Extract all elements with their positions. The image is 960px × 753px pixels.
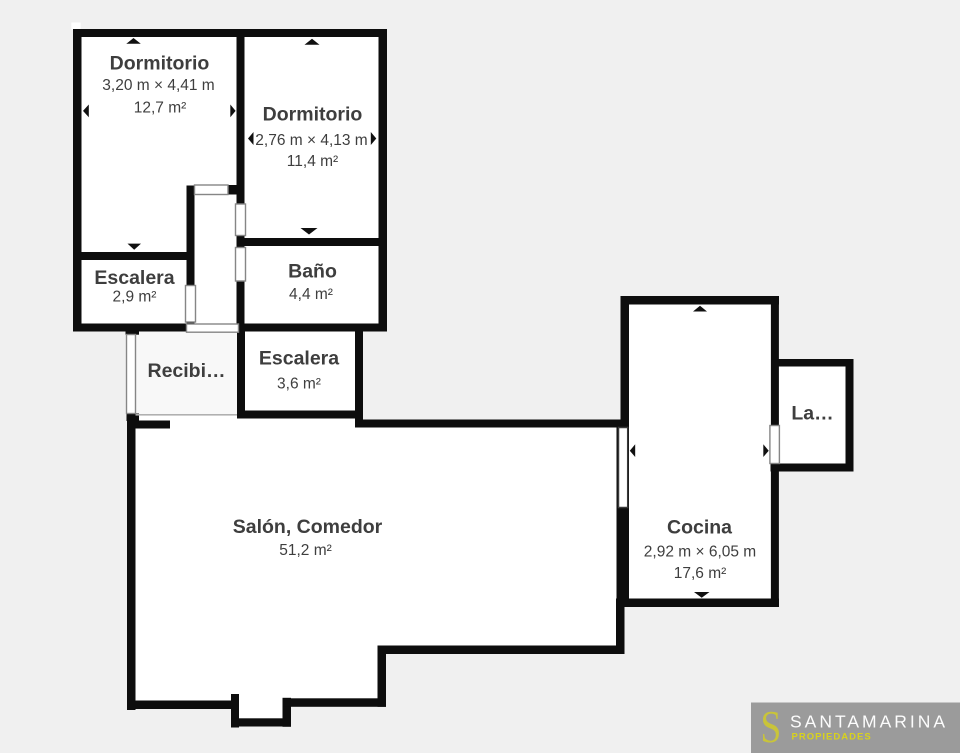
svg-text:11,4 m²: 11,4 m² (287, 153, 338, 170)
svg-text:S: S (761, 701, 782, 751)
svg-text:Salón, Comedor: Salón, Comedor (233, 516, 383, 538)
svg-text:3,20 m × 4,41 m: 3,20 m × 4,41 m (102, 77, 214, 94)
svg-text:12,7 m²: 12,7 m² (134, 100, 187, 117)
svg-text:2,76 m × 4,13 m: 2,76 m × 4,13 m (255, 132, 367, 149)
svg-text:Cocina: Cocina (667, 517, 732, 539)
svg-text:Baño: Baño (288, 261, 337, 283)
svg-text:La…: La… (791, 403, 833, 425)
svg-text:17,6 m²: 17,6 m² (674, 565, 727, 582)
svg-text:Recibi…: Recibi… (147, 360, 225, 382)
svg-text:Escalera: Escalera (259, 348, 339, 370)
svg-text:2,92 m × 6,05 m: 2,92 m × 6,05 m (644, 544, 756, 561)
svg-text:Escalera: Escalera (94, 267, 174, 289)
svg-text:4,4 m²: 4,4 m² (289, 286, 333, 303)
svg-text:51,2 m²: 51,2 m² (279, 542, 332, 559)
svg-text:Dormitorio: Dormitorio (110, 53, 210, 75)
svg-text:SANTAMARINA: SANTAMARINA (790, 712, 948, 732)
svg-text:PROPIEDADES: PROPIEDADES (792, 732, 872, 743)
svg-text:Dormitorio: Dormitorio (263, 104, 363, 126)
svg-text:3,6 m²: 3,6 m² (277, 376, 321, 393)
svg-text:2,9 m²: 2,9 m² (113, 289, 157, 306)
